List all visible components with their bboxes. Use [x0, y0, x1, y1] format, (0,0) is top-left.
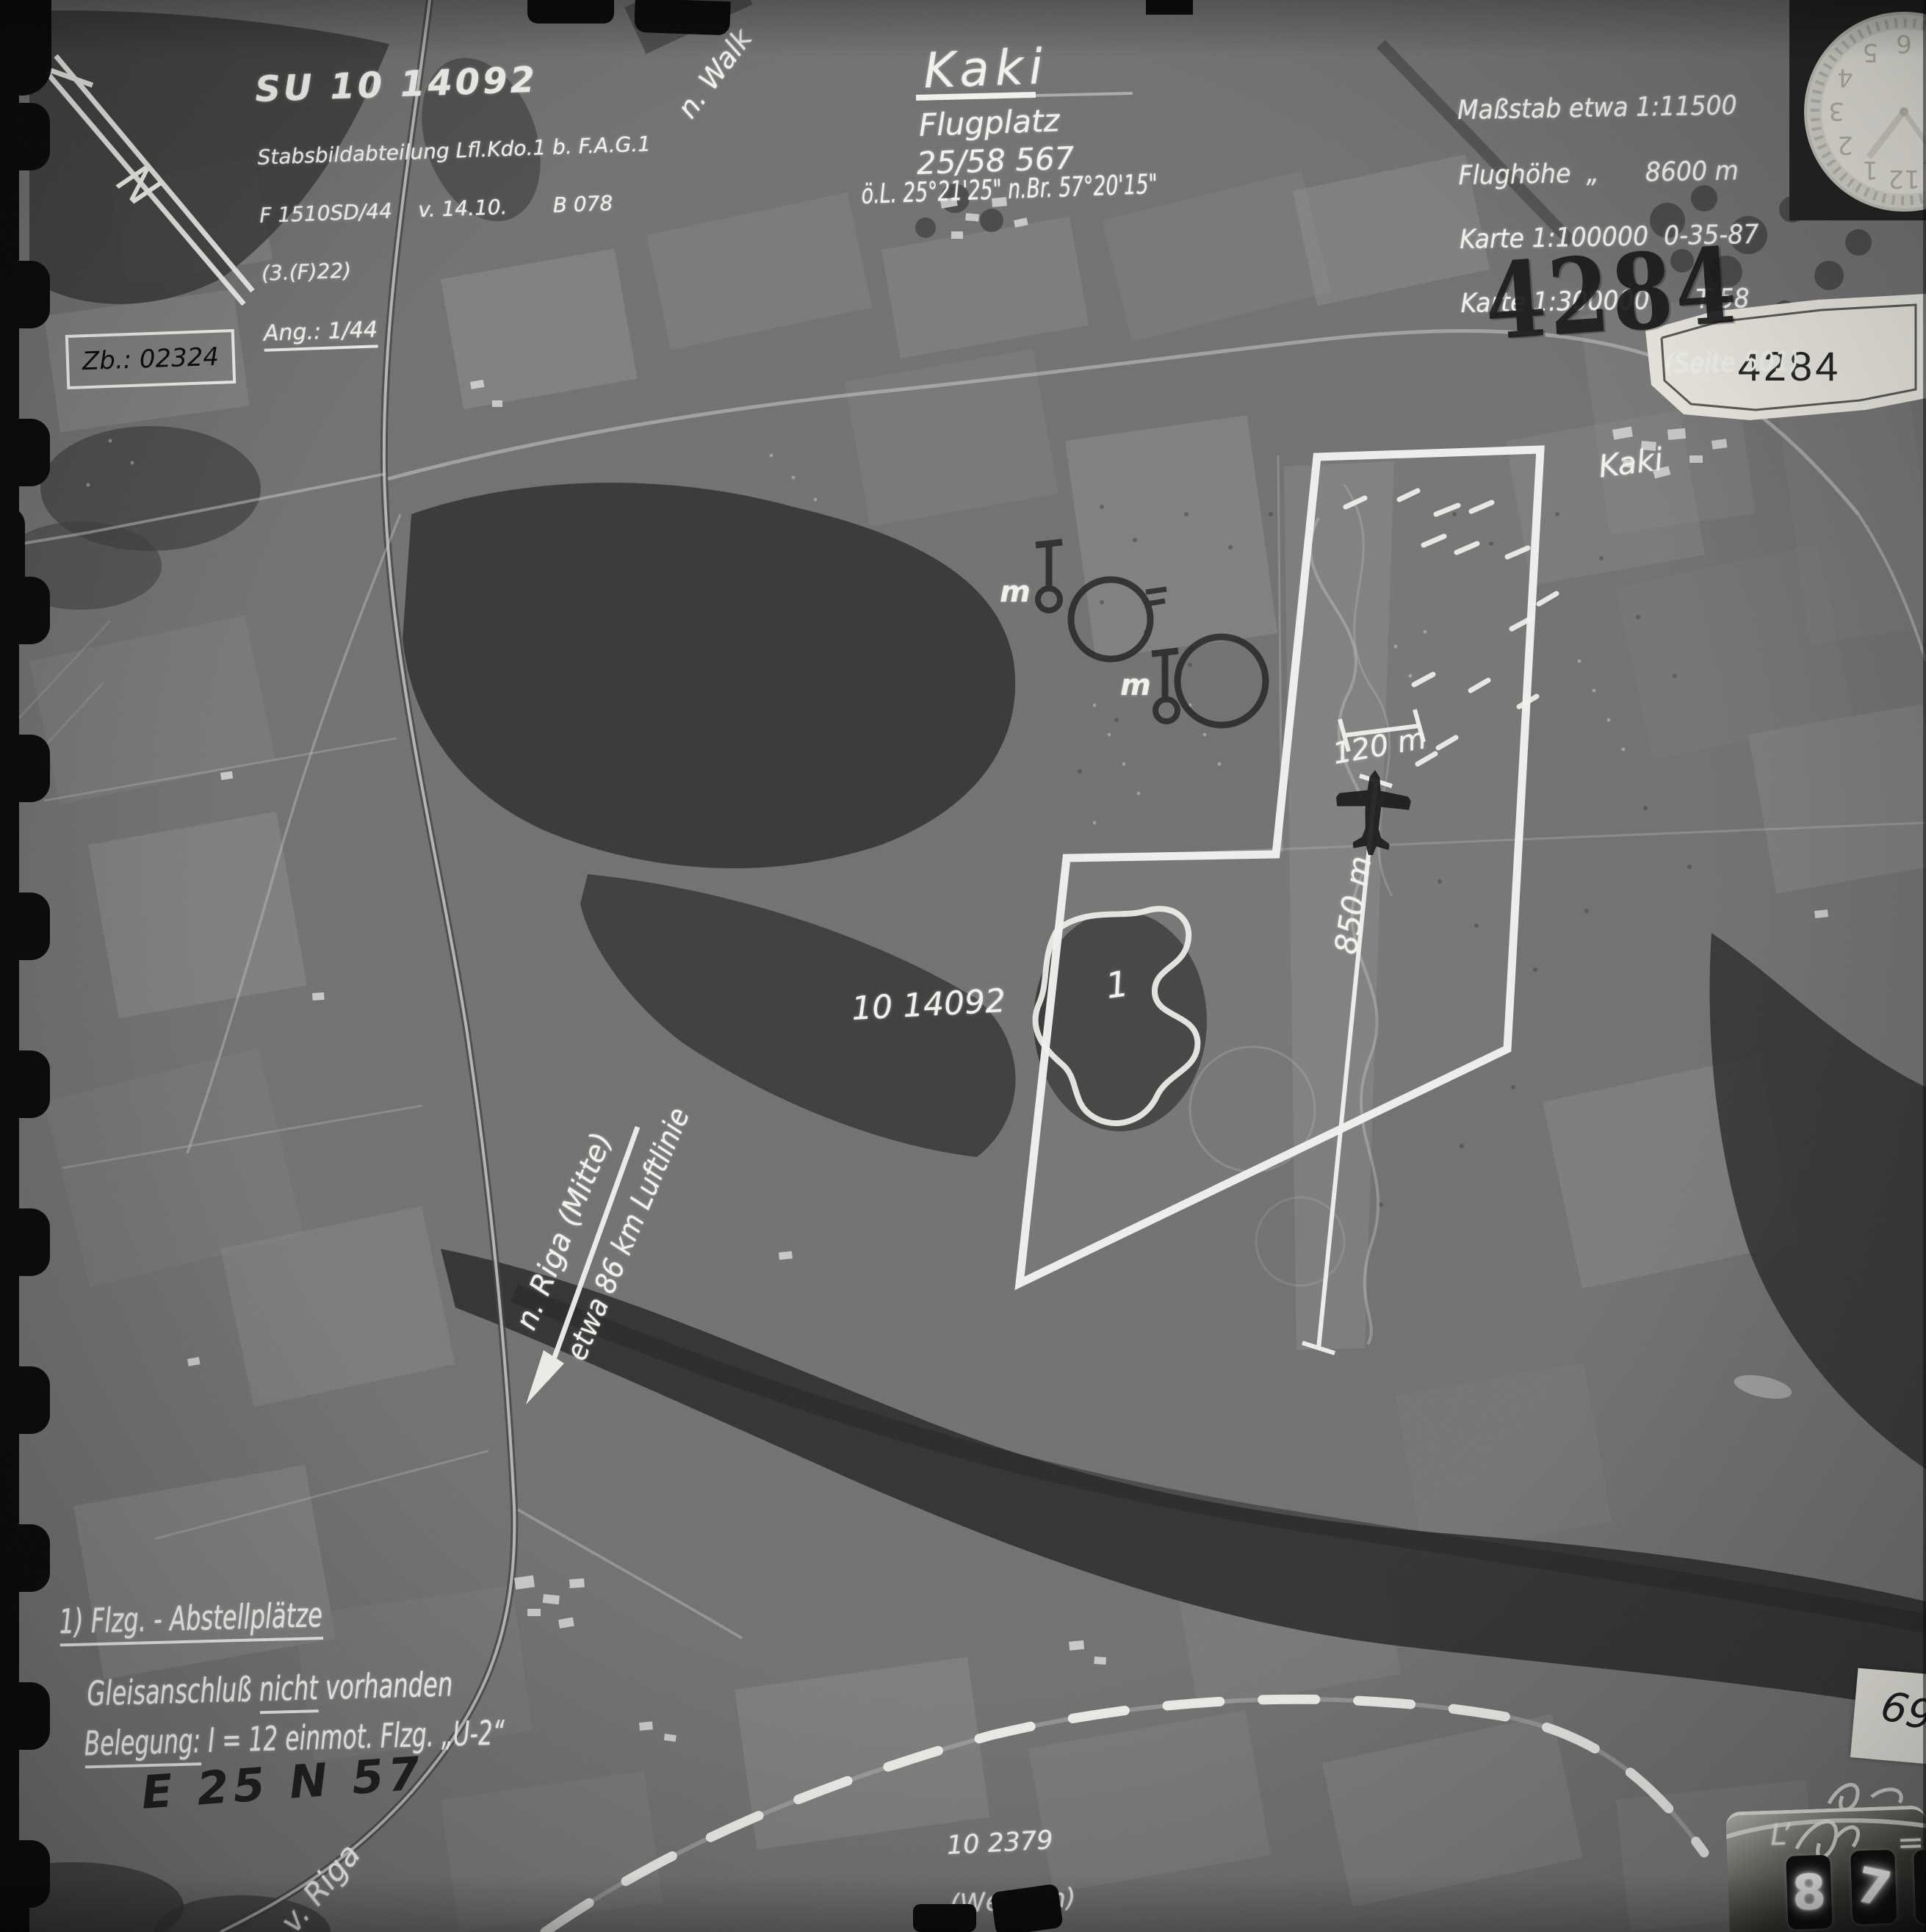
notes-line3-b: I = 12 einmot. Flzg. „U-2“ — [207, 1712, 505, 1760]
svg-text:3: 3 — [1828, 96, 1844, 126]
film-tab-top — [1146, 0, 1193, 15]
aircraft-silhouette — [1333, 768, 1413, 857]
sprocket-hole — [0, 893, 50, 960]
sprocket-hole — [0, 103, 50, 170]
camera-clock-dial: 1 2 3 4 5 6 7 8 9 10 11 12 — [1789, 0, 1926, 220]
sortie-unit: Stabsbildabteilung Lfl.Kdo.1 b. F.A.G.1 — [257, 131, 651, 170]
m-mark-1: m — [1000, 575, 1031, 609]
svg-text:12: 12 — [1888, 164, 1919, 193]
info-altitude: Flughöhe „ 8600 m — [1458, 155, 1796, 191]
counter-digit-1: 8 — [1792, 1864, 1828, 1922]
film-blot-bottom — [990, 1884, 1063, 1932]
film-edge-right — [1923, 0, 1926, 1932]
counter-window-1: 8 — [1786, 1855, 1832, 1930]
film-blot-bottom — [913, 1904, 976, 1932]
svg-text:5: 5 — [1862, 37, 1878, 67]
svg-text:6: 6 — [1896, 29, 1912, 58]
sprocket-hole — [0, 261, 50, 328]
film-blot-left — [0, 507, 25, 646]
sprocket-hole — [0, 1682, 50, 1750]
archive-tag-number: 69. — [1876, 1682, 1926, 1745]
m-mark-2: m — [1120, 668, 1151, 702]
info-scale: Maßstab etwa 1:11500 — [1457, 90, 1795, 126]
film-tab-top — [527, 0, 614, 24]
sortie-number: SU 10 14092 — [254, 55, 649, 110]
sortie-ang: Ang.: 1/44 — [263, 317, 378, 351]
film-blot-left — [0, 1297, 19, 1363]
archive-tag: 69. — [1850, 1668, 1926, 1766]
photo-number-stamp: 4284 — [1481, 225, 1742, 364]
sprocket-hole — [0, 1050, 50, 1118]
svg-text:4: 4 — [1837, 62, 1853, 92]
sprocket-hole — [0, 1524, 50, 1592]
svg-text:1: 1 — [1862, 155, 1878, 184]
sortie-film: F 1510SD/44 v. 14.10. B 078 — [259, 190, 653, 228]
counter-digit-2: 7 — [1851, 1856, 1896, 1918]
counter-window-2: 7 — [1850, 1850, 1897, 1925]
adjacent-photo-ref: 10 2379 — [946, 1825, 1073, 1861]
film-corner-bottomleft — [0, 1881, 29, 1932]
zb-number-box: Zb.: 02324 — [65, 329, 236, 389]
target-name: Kaki — [923, 38, 1050, 99]
airfield-boundary-outline — [1020, 450, 1540, 1283]
sprocket-hole — [0, 735, 50, 802]
counter-mark-left: L’ — [1770, 1818, 1791, 1853]
camera-frame-counter: L’ = 8 7 — [1725, 1805, 1926, 1932]
aerial-reconnaissance-photo: N — [0, 0, 1926, 1932]
film-tab-top — [634, 0, 731, 35]
sprocket-hole — [0, 1208, 50, 1276]
dashed-road-marking — [545, 1699, 1704, 1932]
target-type: Flugplatz — [918, 102, 1060, 143]
sprocket-hole — [0, 419, 50, 486]
film-corner-topleft — [0, 0, 51, 95]
sortie-squadron: (3.(F)22) — [261, 248, 654, 286]
notes-line3-a: Belegung: — [84, 1720, 201, 1768]
sprocket-hole — [0, 1366, 50, 1434]
svg-text:2: 2 — [1837, 130, 1853, 159]
sortie-data-block: SU 10 14092 Stabsbildabteilung Lfl.Kdo.1… — [253, 27, 658, 374]
zb-number: Zb.: 02324 — [82, 342, 219, 376]
